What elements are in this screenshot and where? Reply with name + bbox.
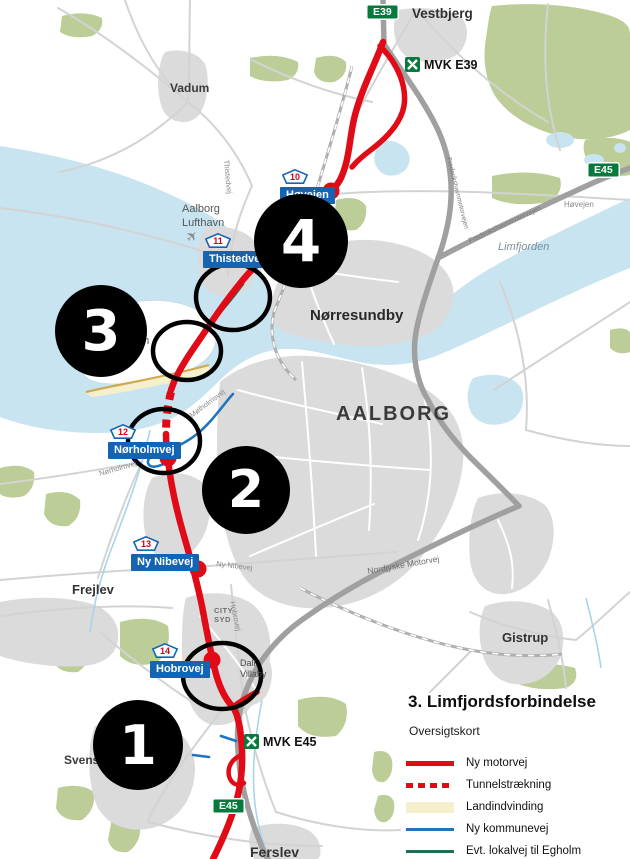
mvk-icon (244, 734, 259, 749)
exit-badge-icon: 10 (282, 169, 308, 184)
e-route-sign-e45-bottom: E45 (212, 798, 245, 814)
svg-text:10: 10 (290, 172, 300, 182)
e-route-sign-e45-right: E45 (587, 162, 620, 178)
legend-item-label: Ny kommunevej (466, 823, 548, 835)
exit-sign-hobrovej: 14 Hobrovej (150, 643, 210, 678)
svg-text:13: 13 (141, 539, 151, 549)
exit-sign-ny-nibevej: 13 Ny Nibevej (131, 536, 199, 571)
exit-plate-label: Ny Nibevej (131, 554, 199, 571)
legend-swatch-green (406, 850, 454, 853)
exit-badge-icon: 14 (152, 643, 178, 658)
legend-swatch-cream (406, 802, 454, 813)
place-label-aalborg: AALBORG (336, 403, 451, 425)
place-label-ferslev: Ferslev (250, 844, 299, 859)
legend-item-label: Tunnelstrækning (466, 779, 551, 791)
place-label-dall-2: Villaby (240, 669, 267, 679)
legend-item-landindvinding: Landindvinding (406, 796, 628, 818)
svg-text:14: 14 (160, 646, 170, 656)
legend-item-tunnel: Tunnelstrækning (406, 774, 628, 796)
map-canvas: Vestbjerg Vadum Aalborg Lufthavn ✈ Nørre… (0, 0, 630, 859)
legend-item-label: Landindvinding (466, 801, 543, 813)
exit-sign-norholmvej: 12 Nørholmvej (108, 424, 181, 459)
water-label-limfjorden: Limfjorden (498, 241, 549, 253)
place-label-vadum: Vadum (170, 81, 209, 95)
place-label-city-syd-2: SYD (214, 615, 231, 624)
exit-badge-icon: 13 (133, 536, 159, 551)
legend-subtitle: Oversigtskort (409, 724, 628, 738)
map-marker-3: 3 (55, 285, 147, 377)
svg-text:11: 11 (213, 236, 223, 246)
place-label-frejlev: Frejlev (72, 582, 115, 597)
legend-swatch-solid-red (406, 761, 454, 766)
legend-swatch-blue (406, 828, 454, 831)
mvk-label: MVK E45 (263, 735, 317, 749)
exit-badge-icon: 12 (110, 424, 136, 439)
legend-swatch-dashed-red (406, 783, 454, 788)
road-label-hovejen: Høvejen (564, 200, 594, 209)
mvk-icon (405, 57, 420, 72)
mvk-label: MVK E39 (424, 58, 478, 72)
map-marker-4: 4 (254, 194, 348, 288)
map-marker-1: 1 (93, 700, 183, 790)
legend-item-label: Evt. lokalvej til Egholm (466, 845, 581, 857)
legend-item-ny-motorvej: Ny motorvej (406, 752, 628, 774)
mvk-junction-e39: MVK E39 (405, 57, 478, 72)
place-label-airport-1: Aalborg (182, 203, 220, 215)
legend-item-label: Ny motorvej (466, 757, 527, 769)
exit-plate-label: Nørholmvej (108, 442, 181, 459)
place-label-gistrup: Gistrup (502, 630, 548, 645)
e-route-sign-e39: E39 (366, 4, 399, 20)
mvk-junction-e45: MVK E45 (244, 734, 317, 749)
exit-plate-label: Hobrovej (150, 661, 210, 678)
map-legend: 3. Limfjordsforbindelse Oversigtskort Ny… (406, 692, 628, 859)
legend-title: 3. Limfjordsforbindelse (408, 692, 628, 712)
place-label-norresundby: Nørresundby (310, 307, 404, 324)
map-marker-2: 2 (202, 446, 290, 534)
exit-badge-icon: 11 (205, 233, 231, 248)
place-label-vestbjerg: Vestbjerg (412, 6, 473, 21)
svg-text:12: 12 (118, 427, 128, 437)
legend-item-lokalvej: Evt. lokalvej til Egholm (406, 840, 628, 859)
legend-item-kommunevej: Ny kommunevej (406, 818, 628, 840)
place-label-dall-1: Dall (240, 658, 256, 668)
